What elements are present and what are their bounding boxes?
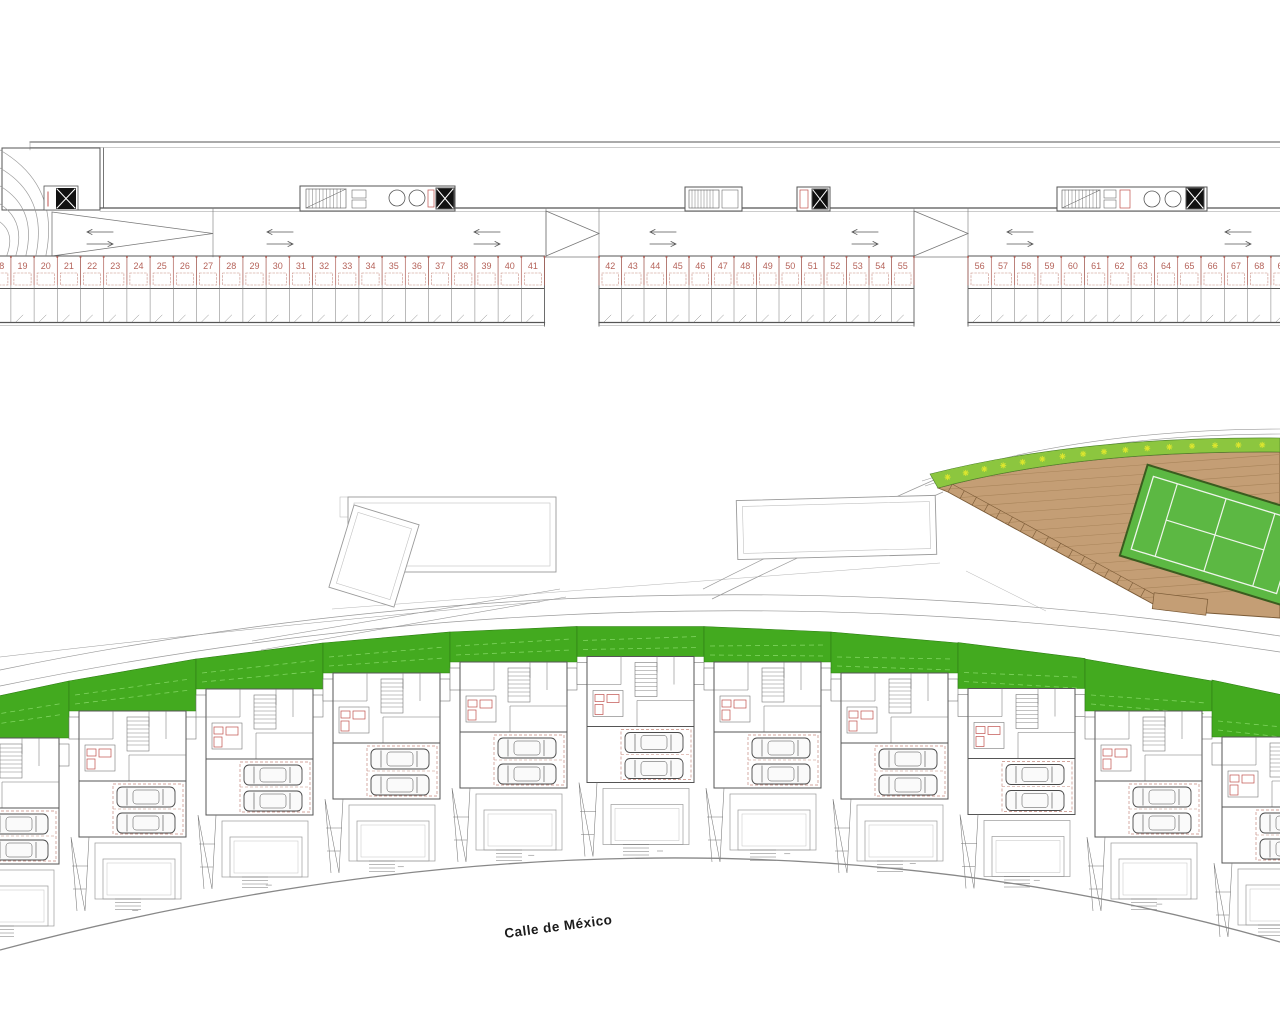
terrace-steps [623, 845, 649, 856]
terrace-steps [1258, 925, 1280, 936]
balcony [567, 668, 577, 690]
arrow-left-icon [852, 230, 878, 235]
parking-stall-number-33: 33 [342, 261, 352, 271]
plant-icon [1144, 445, 1150, 451]
parking-stall-number-49: 49 [763, 261, 773, 271]
arrow-right-icon [650, 242, 676, 247]
house-unit-5 [450, 627, 577, 863]
plant-icon [1212, 442, 1218, 448]
arrow-right-icon [852, 242, 878, 247]
parking-stall-number-59: 59 [1045, 261, 1055, 271]
parking-stall-number-18: 18 [0, 261, 4, 271]
car-icon [879, 749, 937, 769]
parking-stall-number-39: 39 [481, 261, 491, 271]
car-icon [498, 764, 556, 784]
balcony [323, 679, 333, 701]
parking-stall-number-61: 61 [1091, 261, 1101, 271]
balcony [440, 679, 450, 701]
car-icon [244, 791, 302, 811]
terrace [730, 794, 816, 850]
balcony [196, 695, 206, 717]
roof-garden [450, 627, 577, 663]
street-edge [0, 858, 1280, 950]
terrace-steps [242, 877, 268, 888]
driveway [198, 815, 216, 889]
balcony [1212, 743, 1222, 765]
plant-icon [1080, 451, 1086, 457]
plant-icon [1039, 456, 1045, 462]
driveway [706, 788, 724, 862]
parking-stall-number-55: 55 [898, 261, 908, 271]
core-a [300, 186, 455, 211]
plant-icon [1166, 444, 1172, 450]
plunge-pool [611, 805, 683, 845]
house-floor [206, 689, 313, 759]
parking-stall-number-19: 19 [17, 261, 27, 271]
terrace [349, 805, 435, 861]
garage-top-boundary-inner [30, 142, 1280, 150]
parking-stall-number-47: 47 [718, 261, 728, 271]
parking-stall-number-21: 21 [64, 261, 74, 271]
house-unit-2 [69, 659, 196, 911]
arrow-right-icon [267, 242, 293, 247]
terrace [95, 843, 181, 899]
arrow-right-icon [474, 242, 500, 247]
parking-stall-number-46: 46 [695, 261, 705, 271]
parking-stall-number-51: 51 [808, 261, 818, 271]
core-b2 [797, 187, 830, 211]
parking-stall-number-23: 23 [110, 261, 120, 271]
car-icon [752, 738, 810, 758]
terrace-steps [496, 850, 522, 861]
plant-icon [1189, 443, 1195, 449]
parking-stall-number-30: 30 [273, 261, 283, 271]
car-icon [498, 738, 556, 758]
site-plan: Calle de México [0, 426, 1280, 950]
house-floor [79, 711, 186, 781]
plant-icon [1122, 447, 1128, 453]
parking-stall-number-54: 54 [875, 261, 885, 271]
driveway [452, 788, 470, 862]
balcony [450, 668, 460, 690]
parking-stall-number-57: 57 [998, 261, 1008, 271]
plunge-pool [484, 810, 556, 850]
house-unit-9 [958, 643, 1085, 889]
terrace [984, 821, 1070, 877]
parking-stall-number-20: 20 [41, 261, 51, 271]
plant-icon [963, 470, 969, 476]
roof-garden [704, 627, 831, 663]
parking-stall-number-48: 48 [740, 261, 750, 271]
car-icon [625, 733, 683, 753]
balcony [958, 695, 968, 717]
house-unit-3 [196, 643, 323, 889]
ramp-wedge [52, 212, 213, 256]
balcony [69, 717, 79, 739]
car-icon [752, 764, 810, 784]
arrow-left-icon [1007, 230, 1033, 235]
car-icon [244, 765, 302, 785]
core-c [1057, 187, 1207, 211]
roof-garden [0, 681, 69, 738]
parking-stall-number-22: 22 [87, 261, 97, 271]
car-icon [0, 840, 48, 860]
car-icon [625, 759, 683, 779]
parking-stall-number-58: 58 [1021, 261, 1031, 271]
roof-garden [1212, 680, 1280, 737]
parking-stall-number-32: 32 [319, 261, 329, 271]
roof-garden [69, 659, 196, 711]
driveway [1087, 837, 1105, 911]
balcony [1075, 695, 1085, 717]
car-icon [1260, 839, 1280, 859]
parking-stall-number-67: 67 [1231, 261, 1241, 271]
house-floor [460, 662, 567, 732]
balcony [821, 668, 831, 690]
parking-stall-number-42: 42 [605, 261, 615, 271]
parking-stall-number-45: 45 [673, 261, 683, 271]
plunge-pool [0, 886, 48, 926]
balcony [948, 679, 958, 701]
terrace-steps [0, 926, 14, 937]
house-unit-8 [831, 632, 958, 873]
terrace [1111, 843, 1197, 899]
house-floor [333, 673, 440, 743]
car-icon [1006, 791, 1064, 811]
parking-stall-number-34: 34 [365, 261, 375, 271]
parking-stall-number-28: 28 [226, 261, 236, 271]
parking-stall-number-36: 36 [412, 261, 422, 271]
parking-stall-number-53: 53 [853, 261, 863, 271]
balcony [831, 679, 841, 701]
terrace [603, 789, 689, 845]
parking-stall-number-56: 56 [975, 261, 985, 271]
parking-stall-number-68: 68 [1254, 261, 1264, 271]
parking-stall-number-25: 25 [157, 261, 167, 271]
house-unit-10 [1085, 659, 1212, 911]
parking-stall-number-44: 44 [650, 261, 660, 271]
house-unit-7 [704, 627, 831, 863]
plunge-pool [1119, 859, 1191, 899]
car-icon [879, 775, 937, 795]
roof-garden [1085, 659, 1212, 711]
parking-stall-number-37: 37 [435, 261, 445, 271]
arrow-right-icon [1225, 242, 1251, 247]
arrow-left-icon [1225, 230, 1251, 235]
house-floor [714, 662, 821, 732]
plant-icon [981, 466, 987, 472]
parking-stalls: 1819202122232425262728293031323334353637… [0, 256, 1280, 326]
house-unit-11 [1212, 680, 1280, 937]
plunge-pool [865, 821, 937, 861]
house-unit-1 [0, 681, 69, 938]
plant-icon [1060, 453, 1066, 459]
parking-stall-number-63: 63 [1138, 261, 1148, 271]
arrow-left-icon [87, 230, 113, 235]
roof-garden [196, 643, 323, 689]
ramp-wedge [546, 211, 599, 256]
car-icon [371, 775, 429, 795]
house-floor [968, 689, 1075, 759]
parking-stall-number-24: 24 [133, 261, 143, 271]
plunge-pool [738, 810, 810, 850]
car-icon [1260, 813, 1280, 833]
ramp-wedges [52, 208, 968, 257]
balcony [1085, 717, 1095, 739]
balcony [1202, 717, 1212, 739]
parking-stall-number-41: 41 [528, 261, 538, 271]
house-floor [587, 657, 694, 727]
plant-icon [1101, 449, 1107, 455]
driveway [833, 799, 851, 873]
car-icon [1006, 765, 1064, 785]
roof-garden [577, 627, 704, 657]
balcony [694, 663, 704, 685]
parking-stall-number-43: 43 [628, 261, 638, 271]
parking-stall-number-26: 26 [180, 261, 190, 271]
house-floor [0, 738, 59, 808]
roof-garden [958, 643, 1085, 689]
floor-plan-canvas: 1819202122232425262728293031323334353637… [0, 0, 1280, 1024]
parking-stall-number-52: 52 [830, 261, 840, 271]
terrace [857, 805, 943, 861]
plant-icon [1020, 459, 1026, 465]
house-row [0, 627, 1280, 939]
car-icon [371, 749, 429, 769]
plunge-pool [230, 837, 302, 877]
balcony [704, 668, 714, 690]
parking-stall-number-66: 66 [1208, 261, 1218, 271]
car-icon [1133, 813, 1191, 833]
driveway [71, 837, 89, 911]
house-unit-4 [323, 632, 450, 873]
parking-stall-number-50: 50 [785, 261, 795, 271]
ramp-wedge [914, 211, 968, 256]
driveway [325, 799, 343, 873]
plunge-pool [992, 837, 1064, 877]
street-label: Calle de México [503, 912, 613, 941]
balcony [59, 744, 69, 766]
plant-icon [1259, 442, 1265, 448]
parking-stall-number-62: 62 [1114, 261, 1124, 271]
balcony [186, 717, 196, 739]
arrow-left-icon [267, 230, 293, 235]
plunge-pool [103, 859, 175, 899]
arrow-left-icon [474, 230, 500, 235]
arrow-right-icon [1007, 242, 1033, 247]
parking-stall-number-65: 65 [1184, 261, 1194, 271]
pool-outline [736, 495, 936, 559]
driveway [579, 783, 597, 857]
terrace [222, 821, 308, 877]
car-icon [0, 814, 48, 834]
pool-terraces [329, 495, 937, 607]
house-floor [1095, 711, 1202, 781]
car-icon [117, 813, 175, 833]
terrace-steps [369, 861, 395, 872]
parking-stall-number-35: 35 [389, 261, 399, 271]
balcony [313, 695, 323, 717]
parking-stall-number-27: 27 [203, 261, 213, 271]
parking-stall-number-64: 64 [1161, 261, 1171, 271]
plunge-pool [357, 821, 429, 861]
house-unit-6 [577, 627, 704, 857]
parking-stall-number-38: 38 [458, 261, 468, 271]
parking-stall-number-31: 31 [296, 261, 306, 271]
terrace [1238, 869, 1280, 925]
plan-drawing: 1819202122232425262728293031323334353637… [0, 0, 1280, 1024]
plunge-pool [1246, 885, 1280, 925]
plant-icon [945, 474, 951, 480]
core-b [685, 187, 742, 211]
terrace-steps [115, 899, 141, 910]
terrace [476, 794, 562, 850]
plant-icon [1235, 442, 1241, 448]
terrace [0, 870, 54, 926]
parking-stall-number-40: 40 [505, 261, 515, 271]
house-floor [1222, 737, 1280, 807]
roof-deck [922, 426, 1280, 618]
car-icon [1133, 787, 1191, 807]
balcony [577, 663, 587, 685]
rotated-terrace [329, 505, 419, 607]
parking-stall-number-60: 60 [1068, 261, 1078, 271]
house-floor [841, 673, 948, 743]
parking-level-plan: 1819202122232425262728293031323334353637… [0, 142, 1280, 326]
terrace-steps [877, 861, 903, 872]
roof-garden [323, 632, 450, 673]
arrow-left-icon [650, 230, 676, 235]
lane-direction-arrows [87, 230, 1251, 247]
parking-stall-number-29: 29 [249, 261, 259, 271]
car-icon [117, 787, 175, 807]
level-marks [132, 851, 1162, 911]
plant-icon [1000, 462, 1006, 468]
arrow-right-icon [87, 242, 113, 247]
